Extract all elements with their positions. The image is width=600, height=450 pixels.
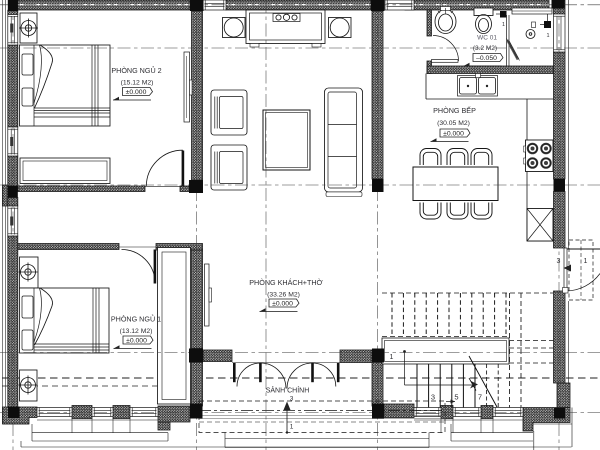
svg-text:±0.000: ±0.000 — [126, 89, 147, 96]
svg-text:3: 3 — [290, 396, 294, 403]
svg-text:PHÒNG BẾP: PHÒNG BẾP — [433, 105, 476, 115]
svg-text:1: 1 — [290, 424, 294, 431]
svg-text:±0.000: ±0.000 — [272, 301, 293, 308]
svg-text:(30.05 M2): (30.05 M2) — [437, 120, 470, 127]
svg-text:PHÒNG KHÁCH+THỜ: PHÒNG KHÁCH+THỜ — [249, 278, 322, 287]
svg-text:(15.12 M2): (15.12 M2) — [121, 80, 154, 87]
svg-text:1: 1 — [584, 258, 588, 265]
svg-text:(3.2 M2): (3.2 M2) — [473, 45, 497, 52]
svg-text:±0.000: ±0.000 — [126, 338, 147, 345]
svg-text:1: 1 — [502, 22, 505, 28]
svg-text:±0.000: ±0.000 — [443, 131, 464, 138]
svg-text:–0.050: –0.050 — [476, 55, 497, 62]
svg-text:PHÒNG NGỦ 1: PHÒNG NGỦ 1 — [111, 315, 161, 324]
svg-text:(33.26 M2): (33.26 M2) — [267, 292, 300, 299]
svg-text:7: 7 — [478, 393, 482, 402]
svg-text:5: 5 — [454, 393, 458, 402]
svg-text:WC 01: WC 01 — [477, 35, 497, 42]
svg-text:(13.12 M2): (13.12 M2) — [120, 328, 153, 335]
svg-text:3: 3 — [431, 393, 435, 402]
svg-text:3: 3 — [557, 258, 561, 265]
svg-text:PHÒNG NGỦ 2: PHÒNG NGỦ 2 — [111, 66, 161, 75]
svg-text:SẢNH CHÍNH: SẢNH CHÍNH — [266, 386, 310, 395]
svg-text:1: 1 — [546, 33, 549, 39]
svg-text:1: 1 — [390, 354, 394, 361]
